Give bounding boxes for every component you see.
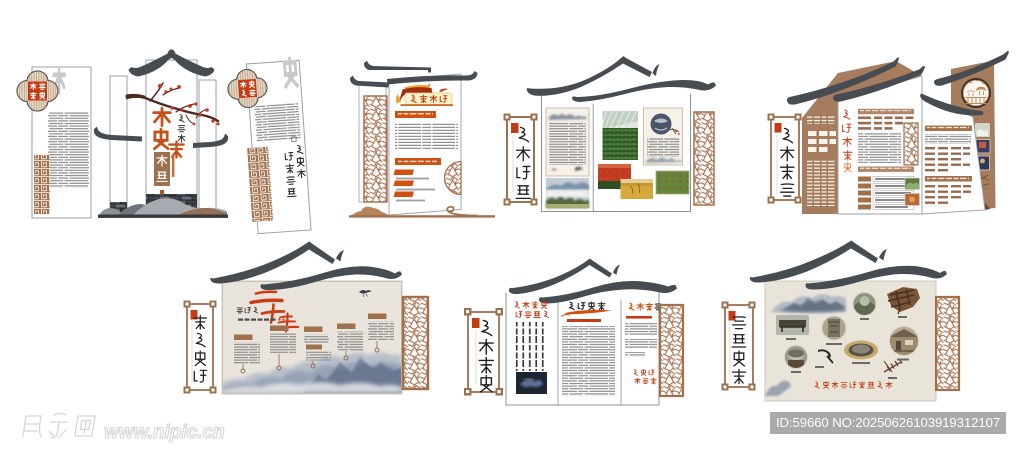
svg-text:www.nipic.cn: www.nipic.cn: [104, 422, 225, 443]
